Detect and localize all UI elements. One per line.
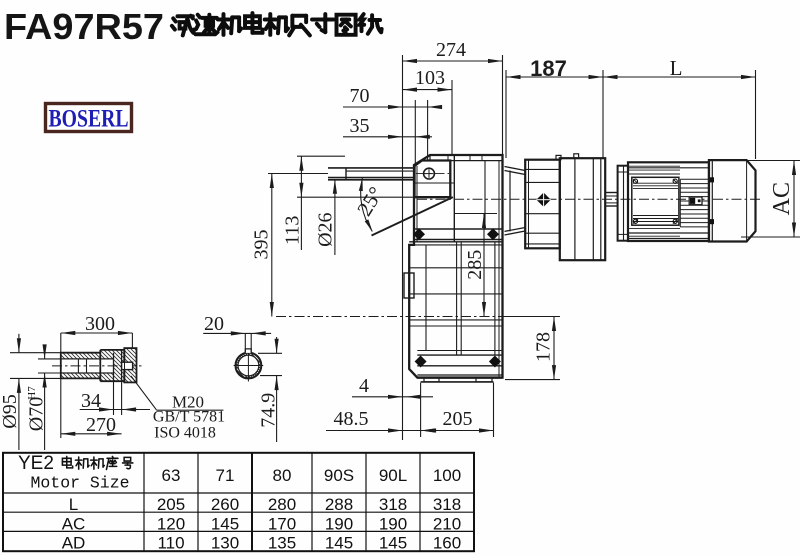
svg-text:110: 110 — [157, 534, 184, 553]
svg-text:80: 80 — [273, 466, 292, 485]
svg-text:120: 120 — [157, 514, 185, 533]
svg-text:318: 318 — [379, 495, 407, 514]
svg-text:100: 100 — [433, 466, 461, 485]
svg-text:H7: H7 — [26, 386, 38, 400]
svg-text:300: 300 — [85, 313, 115, 335]
svg-text:71: 71 — [216, 466, 235, 485]
svg-text:205: 205 — [157, 495, 185, 514]
svg-text:L: L — [670, 56, 683, 80]
svg-text:YE2: YE2 — [18, 453, 54, 474]
svg-text:34: 34 — [81, 390, 101, 412]
svg-text:63: 63 — [162, 466, 181, 485]
svg-text:187: 187 — [530, 56, 567, 81]
svg-text:AC: AC — [769, 182, 795, 215]
svg-text:318: 318 — [433, 495, 461, 514]
svg-text:GB/T 5781: GB/T 5781 — [153, 409, 225, 426]
svg-text:210: 210 — [433, 514, 461, 533]
svg-text:L: L — [69, 495, 78, 514]
svg-text:ISO 4018: ISO 4018 — [154, 425, 216, 442]
svg-text:113: 113 — [282, 216, 304, 245]
svg-text:190: 190 — [379, 514, 407, 533]
svg-text:130: 130 — [211, 534, 239, 553]
svg-text:BOSERL: BOSERL — [49, 106, 129, 133]
svg-text:AD: AD — [62, 534, 86, 553]
svg-text:Ø26: Ø26 — [315, 212, 337, 246]
svg-text:145: 145 — [379, 534, 407, 553]
svg-text:20: 20 — [204, 313, 224, 335]
svg-text:145: 145 — [211, 514, 239, 533]
svg-text:288: 288 — [325, 495, 353, 514]
svg-text:74.9: 74.9 — [258, 393, 280, 428]
svg-text:145: 145 — [325, 534, 353, 553]
svg-text:285: 285 — [464, 250, 486, 280]
svg-text:48.5: 48.5 — [334, 408, 369, 430]
svg-text:135: 135 — [268, 534, 296, 553]
svg-text:90L: 90L — [379, 466, 407, 485]
svg-text:35: 35 — [350, 115, 370, 137]
svg-text:170: 170 — [268, 514, 296, 533]
svg-text:270: 270 — [86, 414, 116, 436]
svg-text:Ø70: Ø70 — [26, 397, 48, 431]
svg-text:90S: 90S — [324, 466, 354, 485]
svg-text:280: 280 — [268, 495, 296, 514]
svg-text:395: 395 — [251, 230, 273, 260]
svg-text:205: 205 — [443, 408, 473, 430]
svg-text:AC: AC — [62, 514, 86, 533]
svg-text:260: 260 — [211, 495, 239, 514]
svg-text:FA97R57: FA97R57 — [4, 6, 164, 47]
svg-text:Motor Size: Motor Size — [30, 474, 129, 493]
svg-text:274: 274 — [436, 39, 466, 61]
svg-text:70: 70 — [350, 85, 370, 107]
svg-text:Ø95: Ø95 — [0, 394, 21, 428]
svg-text:4: 4 — [359, 375, 369, 397]
svg-text:190: 190 — [325, 514, 353, 533]
svg-text:160: 160 — [433, 534, 461, 553]
svg-text:103: 103 — [415, 67, 445, 89]
svg-text:178: 178 — [533, 332, 555, 362]
